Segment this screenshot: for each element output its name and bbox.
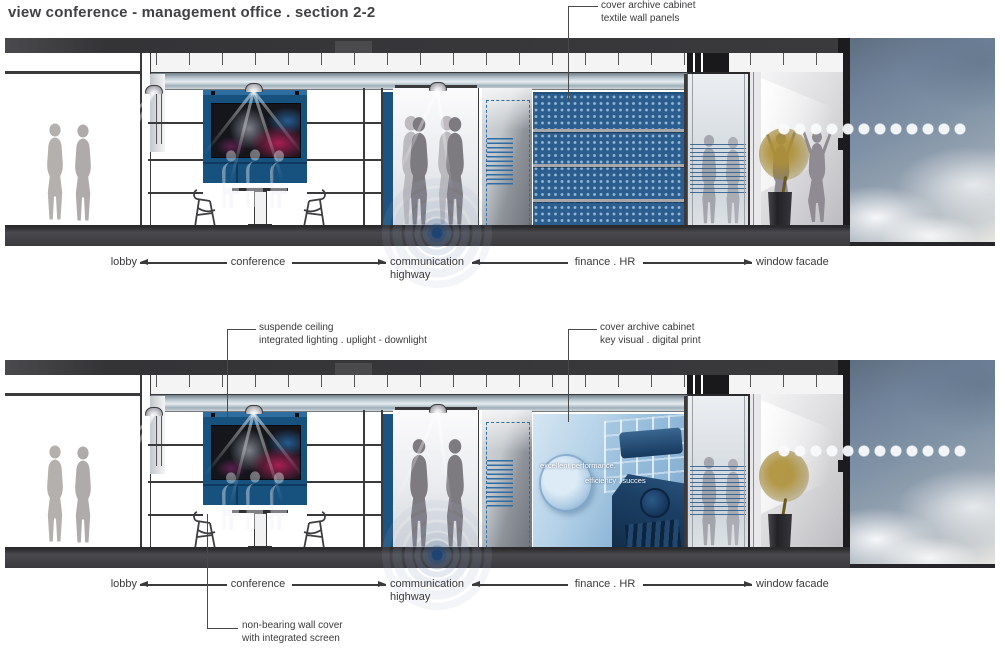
chair bbox=[299, 511, 329, 551]
glass-wall-header bbox=[687, 53, 729, 72]
leader-line bbox=[568, 6, 569, 101]
mount-bracket bbox=[295, 413, 299, 417]
finance-hr-wall: excellent performance. efficiency . succ… bbox=[533, 92, 684, 230]
section-drawing-page: view conference - management office . se… bbox=[0, 0, 1001, 650]
leader-line bbox=[227, 329, 228, 417]
shelf-line bbox=[148, 444, 203, 446]
person-silhouette bbox=[67, 122, 99, 225]
venetian-blinds bbox=[690, 144, 746, 196]
digital-print-wall: excellent performance. efficiency . succ… bbox=[533, 414, 684, 552]
arrow-left-icon bbox=[140, 584, 227, 586]
zone-label-finance-hr: finance . HR bbox=[569, 256, 641, 268]
arrow-right-icon bbox=[292, 584, 386, 586]
annotation-suspended-ceiling: suspende ceiling integrated lighting . u… bbox=[259, 322, 427, 347]
zone-label-conference: conference bbox=[226, 256, 290, 268]
header-slit bbox=[693, 375, 695, 394]
zone-label-communication-line2: highway bbox=[390, 269, 480, 282]
textile-wall-panels bbox=[533, 92, 684, 230]
arrow-right-icon bbox=[643, 584, 752, 586]
light-dots-row bbox=[777, 122, 967, 136]
zone-label-lobby: lobby bbox=[85, 256, 137, 268]
lobby-ceiling-line bbox=[5, 393, 142, 396]
zone-label-window-facade: window facade bbox=[756, 578, 851, 590]
ceiling-hangers bbox=[140, 375, 850, 395]
arrow-right-icon bbox=[643, 262, 752, 264]
dancer-silhouette bbox=[799, 122, 835, 226]
annotation-line: cover archive cabinet bbox=[601, 0, 696, 13]
print-slogan-2: efficiency . succes bbox=[585, 476, 646, 485]
zone-label-finance-hr: finance . HR bbox=[569, 578, 641, 590]
shelf-line bbox=[307, 444, 383, 446]
ceiling-slab bbox=[5, 38, 850, 53]
mount-bracket bbox=[295, 91, 299, 95]
mount-bracket bbox=[211, 413, 215, 417]
sky-view bbox=[850, 360, 995, 564]
zone-label-window-facade: window facade bbox=[756, 256, 851, 268]
leader-line bbox=[207, 628, 238, 629]
zone-label-conference: conference bbox=[226, 578, 290, 590]
facade-notch bbox=[838, 460, 843, 472]
shelf-line bbox=[307, 159, 383, 161]
plant-pot bbox=[767, 514, 793, 550]
wall-joint-line bbox=[363, 88, 365, 228]
zone-label-communication-line1: communication bbox=[390, 256, 480, 269]
leader-line bbox=[568, 6, 598, 7]
shelf-line bbox=[307, 481, 383, 483]
zone-label-communication-line1: communication bbox=[390, 578, 480, 591]
header-slit bbox=[701, 375, 703, 394]
window-gallery bbox=[761, 394, 843, 550]
shelf-line bbox=[148, 481, 203, 483]
section-view-top: excellent performance. efficiency . succ… bbox=[5, 38, 995, 246]
mount-bracket bbox=[211, 91, 215, 95]
ceiling-slab bbox=[5, 360, 850, 375]
floor-edge bbox=[850, 242, 995, 246]
arrow-left-icon bbox=[140, 262, 227, 264]
annotation-line: with integrated screen bbox=[242, 633, 343, 646]
annotation-key-visual: cover archive cabinet key visual . digit… bbox=[600, 322, 701, 347]
zone-label-lobby: lobby bbox=[85, 578, 137, 590]
hanging-cable bbox=[156, 94, 162, 144]
chair bbox=[190, 511, 220, 551]
shelf-line bbox=[148, 159, 203, 161]
zone-label-communication-highway: communication highway bbox=[390, 578, 480, 604]
leader-line bbox=[227, 329, 256, 330]
zone-label-communication-highway: communication highway bbox=[390, 256, 480, 282]
wall-joint-line bbox=[363, 410, 365, 550]
annotation-wall-cover: non-bearing wall cover with integrated s… bbox=[242, 620, 343, 645]
window-gallery bbox=[761, 72, 843, 228]
ceiling-hangers bbox=[140, 53, 850, 73]
person-silhouette bbox=[67, 444, 99, 547]
glass-wall-header bbox=[687, 375, 729, 394]
zone-label-row: lobby conference communication highway f… bbox=[5, 256, 995, 286]
plant-pot bbox=[767, 192, 793, 228]
light-dots-row bbox=[777, 444, 967, 458]
chair bbox=[299, 189, 329, 229]
annotation-line: non-bearing wall cover bbox=[242, 620, 343, 633]
header-slit bbox=[693, 53, 695, 72]
print-machine-hatch bbox=[640, 488, 670, 518]
hanging-cable bbox=[156, 416, 162, 466]
leader-line bbox=[568, 329, 597, 330]
arrow-left-icon bbox=[472, 262, 568, 264]
panel-divider bbox=[533, 199, 684, 202]
page-title: view conference - management office . se… bbox=[8, 4, 375, 21]
annotation-line: textile wall panels bbox=[601, 13, 696, 26]
annotation-line: key visual . digital print bbox=[600, 335, 701, 348]
annotation-textile-panels: cover archive cabinet textile wall panel… bbox=[601, 0, 696, 25]
header-slit bbox=[701, 53, 703, 72]
facade-notch bbox=[838, 138, 843, 150]
arrow-right-icon bbox=[292, 262, 386, 264]
glass-partition bbox=[687, 394, 750, 552]
annotation-line: integrated lighting . uplight - downligh… bbox=[259, 335, 427, 348]
zone-label-row: lobby conference communication highway f… bbox=[5, 578, 995, 608]
venetian-blinds bbox=[690, 466, 746, 518]
floor-edge bbox=[850, 564, 995, 568]
annotation-line: suspende ceiling bbox=[259, 322, 427, 335]
arrow-left-icon bbox=[472, 584, 568, 586]
section-view-bottom: excellent performance. efficiency . succ… bbox=[5, 360, 995, 568]
leader-line bbox=[207, 514, 208, 629]
lobby-ceiling-line bbox=[5, 71, 142, 74]
panel-divider bbox=[533, 164, 684, 167]
print-machine-cylinder bbox=[619, 427, 683, 458]
panel-divider bbox=[533, 129, 684, 132]
shelf-line bbox=[307, 122, 383, 124]
sky-view bbox=[850, 38, 995, 242]
print-slogan-1: excellent performance. bbox=[540, 461, 616, 470]
zone-label-communication-line2: highway bbox=[390, 591, 480, 604]
glass-partition bbox=[687, 72, 750, 230]
finance-hr-wall: excellent performance. efficiency . succ… bbox=[533, 414, 684, 552]
stair-rungs bbox=[487, 460, 513, 508]
leader-line bbox=[568, 329, 569, 422]
stair-rungs bbox=[487, 138, 513, 186]
annotation-line: cover archive cabinet bbox=[600, 322, 701, 335]
shelf-line bbox=[148, 122, 203, 124]
chair bbox=[190, 189, 220, 229]
